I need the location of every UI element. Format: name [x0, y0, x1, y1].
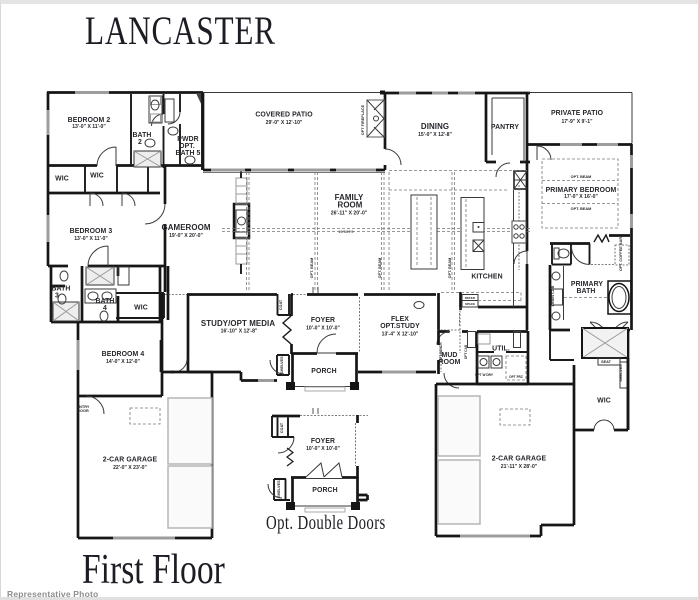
- svg-text:GAMEROOM: GAMEROOM: [161, 223, 210, 232]
- svg-text:LINEN CAB: LINEN CAB: [551, 285, 555, 306]
- svg-text:OPT. BEAM: OPT. BEAM: [571, 175, 592, 179]
- svg-text:STUDY/OPT MEDIA: STUDY/OPT MEDIA: [201, 319, 275, 328]
- svg-text:2: 2: [138, 139, 142, 146]
- svg-text:SHELVES: SHELVES: [619, 364, 623, 382]
- svg-text:10'-0" X 10'-0": 10'-0" X 10'-0": [306, 446, 340, 452]
- svg-text:BEDROOM 2: BEDROOM 2: [68, 117, 111, 124]
- svg-text:BATH: BATH: [576, 288, 595, 295]
- svg-text:OPT FIREPLACE: OPT FIREPLACE: [361, 104, 365, 135]
- svg-text:SHELVES: SHELVES: [277, 480, 281, 498]
- svg-text:ROOM: ROOM: [338, 201, 363, 210]
- svg-text:BEDROOM 3: BEDROOM 3: [70, 228, 113, 235]
- svg-text:22'-0" X 23'-0": 22'-0" X 23'-0": [113, 465, 147, 471]
- svg-text:3: 3: [55, 293, 59, 300]
- svg-text:17'-0" X 16'-0": 17'-0" X 16'-0": [564, 194, 598, 200]
- svg-text:BEDROOM 4: BEDROOM 4: [102, 351, 145, 358]
- svg-text:4: 4: [103, 305, 107, 312]
- svg-text:OPT. BEAM: OPT. BEAM: [571, 207, 592, 211]
- svg-text:COAT: COAT: [280, 422, 284, 433]
- svg-text:FOYER: FOYER: [311, 438, 335, 445]
- svg-text:15'-0" X 12'-8": 15'-0" X 12'-8": [418, 132, 452, 138]
- svg-text:OPT FRZ: OPT FRZ: [509, 375, 523, 379]
- svg-text:UTIL.: UTIL.: [492, 346, 510, 353]
- svg-text:PORCH: PORCH: [311, 368, 336, 375]
- svg-text:FLEX: FLEX: [391, 316, 409, 323]
- svg-text:PANTRY: PANTRY: [491, 124, 519, 131]
- svg-text:BATH: BATH: [95, 298, 114, 305]
- svg-text:PORCH: PORCH: [312, 487, 337, 494]
- svg-text:OPT.: OPT.: [179, 143, 195, 150]
- svg-text:21'-11" X 28'-0": 21'-11" X 28'-0": [501, 464, 538, 470]
- svg-text:OPT. BEAM: OPT. BEAM: [448, 258, 452, 279]
- svg-text:13'-4" X 12'-10": 13'-4" X 12'-10": [382, 332, 419, 338]
- svg-text:OPT W DRY: OPT W DRY: [475, 373, 494, 377]
- svg-text:PRIVATE PATIO: PRIVATE PATIO: [551, 110, 604, 117]
- svg-text:13'-0" X 11'-0": 13'-0" X 11'-0": [72, 124, 106, 130]
- svg-text:WIC: WIC: [55, 176, 69, 183]
- svg-text:2-CAR GARAGE: 2-CAR GARAGE: [103, 457, 158, 464]
- svg-text:BATH 5: BATH 5: [176, 150, 201, 157]
- svg-text:WIC: WIC: [90, 173, 104, 180]
- svg-text:PRIMARY: PRIMARY: [571, 281, 604, 288]
- svg-text:DOOR: DOOR: [77, 409, 89, 413]
- svg-text:14'-0" X 12'-0": 14'-0" X 12'-0": [106, 359, 140, 365]
- svg-text:SPACE: SPACE: [465, 302, 475, 306]
- svg-text:OPT. BEAM: OPT. BEAM: [310, 258, 314, 279]
- svg-text:PWDR: PWDR: [177, 136, 198, 143]
- svg-text:FOYER: FOYER: [311, 317, 335, 324]
- svg-text:REFER: REFER: [465, 296, 476, 300]
- svg-text:SHELVES: SHELVES: [280, 356, 284, 374]
- svg-text:17'-9" X 9'-1": 17'-9" X 9'-1": [561, 119, 593, 125]
- svg-text:PRIMARY BEDROOM: PRIMARY BEDROOM: [546, 187, 617, 194]
- svg-text:WIC: WIC: [597, 398, 611, 405]
- svg-text:MUD: MUD: [442, 352, 458, 359]
- svg-text:2-CAR GARAGE: 2-CAR GARAGE: [492, 456, 547, 463]
- svg-text:DINING: DINING: [421, 122, 449, 131]
- svg-text:19'-0" X 20'-0": 19'-0" X 20'-0": [169, 233, 203, 239]
- svg-text:26'-11" X 20'-0": 26'-11" X 20'-0": [331, 211, 368, 217]
- svg-text:KITCHEN: KITCHEN: [471, 274, 502, 281]
- svg-text:OPT BENCH: OPT BENCH: [439, 342, 443, 361]
- svg-text:13'-0" X 11'-0": 13'-0" X 11'-0": [74, 236, 108, 242]
- svg-text:OPT. BEAM: OPT. BEAM: [378, 258, 382, 279]
- svg-text:10'-0" X 10'-0": 10'-0" X 10'-0": [306, 326, 340, 332]
- svg-text:29'-0" X 12'-10": 29'-0" X 12'-10": [266, 120, 303, 126]
- svg-text:WIC: WIC: [134, 305, 148, 312]
- svg-text:OPT. COFFEE BAR: OPT. COFFEE BAR: [619, 237, 623, 271]
- svg-text:16'-10" X 12'-8": 16'-10" X 12'-8": [221, 329, 258, 335]
- svg-text:SEAT: SEAT: [601, 360, 612, 364]
- svg-text:OPT CAB: OPT CAB: [464, 344, 468, 359]
- svg-text:BATH: BATH: [132, 132, 151, 139]
- svg-text:26'3X9'0: 26'3X9'0: [339, 230, 354, 234]
- svg-text:BATH: BATH: [51, 286, 70, 293]
- svg-text:COVERED PATIO: COVERED PATIO: [255, 112, 313, 119]
- svg-text:OPT.STUDY: OPT.STUDY: [380, 323, 420, 330]
- svg-text:COAT: COAT: [279, 299, 283, 310]
